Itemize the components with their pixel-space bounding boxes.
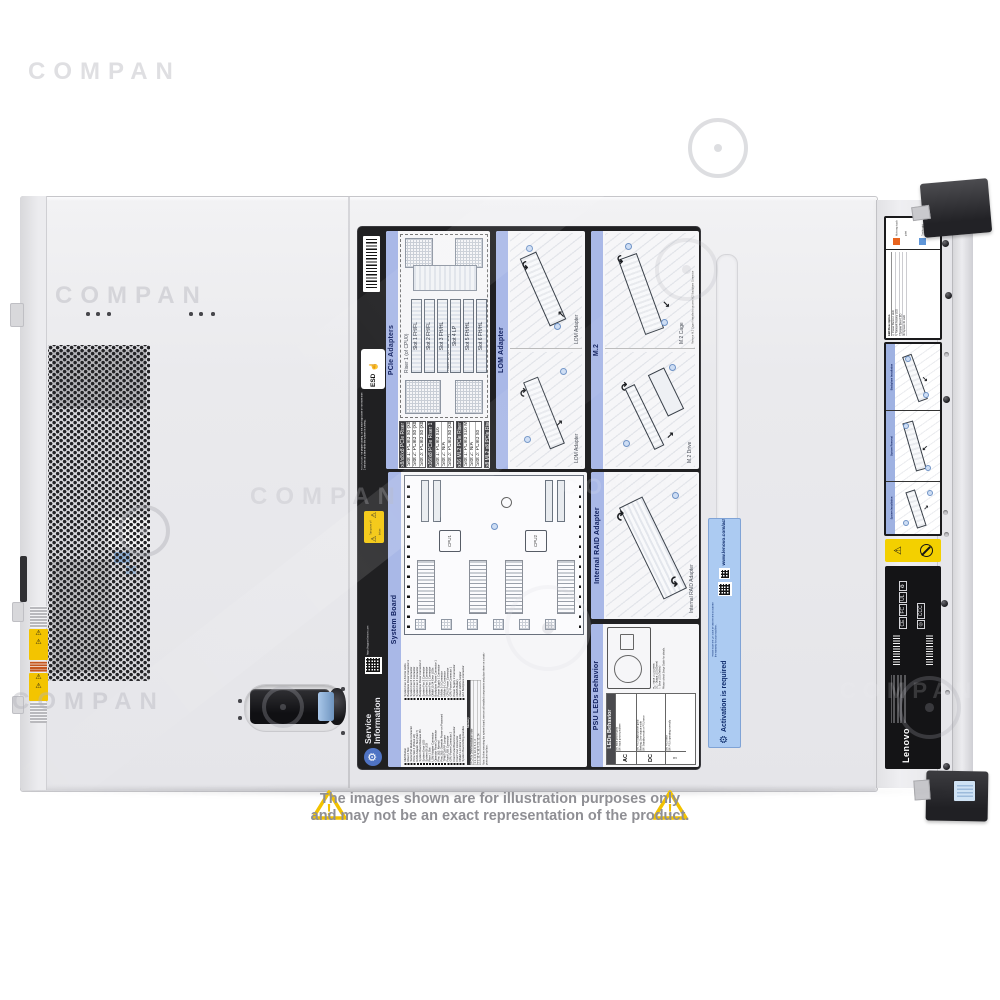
m2-caption: M.2 Cage bbox=[679, 322, 685, 344]
slot-stack: Slot 1 FH/FLSlot 2 FH/FLSlot 3 FH/HLSlot… bbox=[411, 299, 483, 373]
activation-title: Activation is required bbox=[721, 660, 728, 732]
pcie-riser-table: x16/x8 PCIe Riser 1 kitSlot 1: PCIe3 x16… bbox=[427, 421, 454, 468]
arrow-icon: ↷ bbox=[614, 510, 630, 521]
screw bbox=[943, 763, 950, 770]
psu-legend: AC : Input LED (Green)DC : Output LED (G… bbox=[653, 627, 695, 689]
callout-dot bbox=[554, 323, 561, 330]
warning-icon: ⚠ bbox=[35, 674, 41, 681]
screw bbox=[941, 600, 948, 607]
product-photo: ⚠⚠ ⚠⚠ ESD ☝ bbox=[0, 0, 1000, 1000]
fan-connector bbox=[493, 619, 504, 630]
callout-dot bbox=[623, 440, 630, 447]
watermark-logo bbox=[262, 686, 304, 728]
callout-dot bbox=[903, 423, 909, 429]
support-qr-code bbox=[365, 657, 382, 674]
callout-dot bbox=[625, 243, 632, 250]
arrow-icon: ↷ bbox=[619, 382, 632, 391]
support-url: https://support.lenovo.com bbox=[367, 626, 370, 655]
table-row: Slot 3: PCIe3 x8 (x8, x4, x1) bbox=[447, 422, 453, 467]
cmos-battery bbox=[501, 497, 512, 508]
table-row: Slot 3: PCIe3 x8 (x8, x4, x1) bbox=[419, 422, 425, 467]
dimm-bank bbox=[469, 560, 487, 614]
screw bbox=[945, 292, 952, 299]
lom-caption: LOM Adapter bbox=[574, 315, 580, 344]
reg-barcode bbox=[893, 635, 900, 665]
psu-fan-circle bbox=[614, 655, 642, 683]
psu-led-id: ! bbox=[666, 751, 686, 764]
lenovo-logo: Lenovo bbox=[901, 728, 911, 763]
orange-touchpoint bbox=[893, 238, 900, 245]
pcie-slot: Slot 1 FH/FL bbox=[411, 299, 422, 373]
cert-mark: ◎ bbox=[917, 620, 925, 629]
section-title: Backplane Installation bbox=[891, 364, 894, 390]
front-warning-label: ⚠ bbox=[885, 539, 941, 562]
support-qr-block: https://support.lenovo.com bbox=[360, 616, 386, 674]
callout-dot bbox=[661, 319, 668, 326]
table-header: x16/x8 PCIe Riser 1 kit bbox=[428, 422, 434, 467]
cert-mark: UL bbox=[899, 592, 907, 603]
arrow-icon: ↗ bbox=[556, 310, 567, 318]
warning-icon: ⚠ bbox=[35, 639, 41, 646]
orange-touchpoint-text: Hot-swap touch point bbox=[896, 220, 908, 236]
psu-behavior: Off: Input power problem bbox=[618, 694, 621, 751]
screw-hole bbox=[944, 352, 949, 357]
panel-pcie-adapters: PCIe Adapters x8/x8/x8 PCIe Riser 1 kitS… bbox=[386, 231, 490, 469]
section-backplane-installation: Backplane Installation ↙ bbox=[886, 344, 940, 410]
legend-item: M.2 Backplane Connector bbox=[462, 638, 465, 700]
led-table-row: ID System ID LED bbox=[903, 252, 907, 336]
pcie-slot: Slot 4 LP bbox=[450, 299, 461, 373]
cover-dot bbox=[238, 699, 242, 703]
cover-dot bbox=[86, 312, 90, 316]
section-title: System Installation bbox=[891, 497, 894, 520]
arrow-icon: ↙ bbox=[661, 300, 672, 308]
disclaimer: The images shown are for illustration pu… bbox=[0, 791, 1000, 825]
service-info-icon: ⚙ bbox=[364, 748, 382, 766]
arrow-icon: ↙ bbox=[921, 376, 929, 382]
psu-grid bbox=[455, 238, 483, 268]
arrow-icon: ↶ bbox=[668, 576, 684, 587]
watermark-logo bbox=[688, 118, 748, 178]
watermark-logo bbox=[505, 585, 591, 671]
activation-label: ⚙ Activation is required Please scan the… bbox=[708, 518, 741, 748]
section-title: System Removal bbox=[891, 436, 894, 456]
panel-title: M.2 bbox=[591, 231, 603, 469]
panel-title: System Board bbox=[388, 472, 401, 767]
panel-title: PSU LEDs Behavior bbox=[591, 624, 603, 767]
riser-block bbox=[413, 265, 477, 291]
pcie-riser-table: x8 ML2 x8 PCIe Riser 1 kitSlot 1: PCIe3 … bbox=[484, 421, 489, 468]
panel-title: PCIe Adapters bbox=[386, 231, 398, 469]
attention-text: ATTENTION: For proper cooling, do not le… bbox=[361, 392, 367, 470]
screw bbox=[942, 240, 949, 247]
screw-hole bbox=[943, 510, 948, 515]
callout-dot bbox=[925, 465, 931, 471]
panel-title: LOM Adapter bbox=[496, 231, 508, 469]
memory-table-row: 2 1, 13, 4, 16, 9, 21, 12, 24 bbox=[477, 680, 481, 765]
esd-hand-icon: ☝ bbox=[369, 362, 378, 372]
callout-dot bbox=[560, 368, 567, 375]
watermark-text: COMPAN bbox=[28, 58, 181, 86]
rack-latch-top[interactable] bbox=[920, 178, 992, 238]
cert-mark: CE bbox=[899, 617, 907, 629]
legend-item: System Board Lifting Handles bbox=[462, 703, 465, 765]
activation-note: Please scan the QR code or visit the lin… bbox=[712, 599, 718, 657]
m2-illustration-1: ↷ ↘ M.2 Drive bbox=[605, 352, 695, 467]
warning-icon: ⚠ bbox=[893, 546, 904, 555]
service-info-line2: Information bbox=[373, 697, 382, 744]
callout-dot bbox=[526, 245, 533, 252]
activation-qr-code bbox=[718, 582, 732, 596]
arrow-icon: ↶ bbox=[520, 261, 533, 270]
arrow-icon: ↘ bbox=[923, 505, 930, 510]
psu-led-table: LEDs Behavior AC On: Input power goodOff… bbox=[606, 693, 696, 765]
warning-icon: ⚠ bbox=[35, 630, 41, 637]
lom-illustration-1: ↷ ↘ LOM Adapter bbox=[510, 352, 582, 467]
activation-url: www.lenovo.com/activate bbox=[722, 518, 727, 565]
rear-slot bbox=[20, 556, 27, 602]
callout-dot bbox=[923, 392, 929, 398]
warning-icon: ⚠ bbox=[370, 536, 378, 542]
fan-grid bbox=[405, 380, 441, 414]
pcie-rear-diagram: Riser 1 (of CPU0) Riser 2 (of CPU1) Slot… bbox=[400, 234, 488, 418]
latch-hinge bbox=[911, 205, 931, 221]
esd-label: ESD ☝ bbox=[361, 349, 385, 389]
front-howto-label: System Installation ↘ System Removal bbox=[884, 342, 942, 536]
fan-connector bbox=[467, 619, 478, 630]
cover-dot bbox=[238, 716, 242, 720]
mini-warning-text: Turn power off before removing any non-h… bbox=[370, 519, 384, 535]
fan-grid bbox=[455, 380, 483, 414]
label-barcode bbox=[363, 236, 380, 292]
latch-blue-button[interactable] bbox=[318, 692, 334, 721]
watermark-text: COMPAN bbox=[250, 483, 403, 511]
cover-dot bbox=[199, 312, 203, 316]
attention-note: ATTENTION: For proper cooling, do not le… bbox=[361, 392, 383, 470]
activation-qr-code bbox=[719, 568, 730, 579]
psu-led-row-error: ! On: PSU errorOff: PSU operating normal… bbox=[665, 694, 686, 764]
cover-dot bbox=[96, 312, 100, 316]
riser-slot-bar bbox=[421, 480, 429, 522]
riser1-caption: Riser 1 (of CPU0) bbox=[404, 334, 410, 373]
psu-behavior: Off: PSU operating normally bbox=[668, 694, 671, 751]
rear-tab bbox=[12, 602, 24, 622]
callout-dot bbox=[905, 356, 911, 362]
rear-tab bbox=[10, 303, 24, 327]
section-system-installation: System Installation ↘ bbox=[886, 481, 940, 534]
blue-touchpoint bbox=[919, 238, 926, 245]
watermark-logo bbox=[655, 238, 718, 301]
psu-led-row-ac: AC On: Input power goodOff: Input power … bbox=[615, 694, 636, 764]
screw-hole bbox=[944, 532, 949, 537]
callout-dot bbox=[903, 520, 909, 526]
cpu1-label: CPU1 bbox=[447, 535, 452, 547]
warning-icon: ⚠ bbox=[370, 512, 378, 518]
section-system-removal: System Removal ↖ bbox=[886, 410, 940, 481]
watermark-logo bbox=[118, 505, 170, 557]
cover-dot bbox=[211, 312, 215, 316]
system-board-note: Note: Before removing the system board, … bbox=[482, 650, 488, 765]
cert-mark: ♻ bbox=[899, 581, 907, 590]
pcie-slot: Slot 2 FH/FL bbox=[424, 299, 435, 373]
table-row: Slot 2: PCIe3 x8 (x8, x4, x1) bbox=[412, 422, 418, 467]
psu-table-header: LEDs Behavior bbox=[607, 694, 615, 764]
table-header: x8 ML2 x8 PCIe Riser 1 kit bbox=[485, 422, 489, 467]
psu-led-id: DC bbox=[637, 751, 665, 764]
m2-cage-art bbox=[648, 367, 684, 416]
front-led-table: LED Description ◎ Power Button / LED↯ Ne… bbox=[888, 252, 938, 336]
barcode-bars bbox=[366, 239, 377, 289]
watermark-text: COMPAN bbox=[12, 688, 165, 716]
table-header: x8/x8/x8 PCIe Riser 1 kit bbox=[400, 422, 406, 467]
cert-marks: CEFCUL♻◎CCC bbox=[891, 571, 937, 629]
riser-slot-bar bbox=[545, 480, 553, 522]
table-row: Slot 1: PCIe3 x8 (x8, x4, x1) bbox=[406, 422, 412, 467]
fan-connector bbox=[415, 619, 426, 630]
arrow-icon: ↘ bbox=[554, 419, 565, 427]
pcie-riser-table: x16 ML2 PCIe Riser 1 kitSlot 1: PCIe3 x1… bbox=[456, 421, 483, 468]
pcie-slot: Slot 3 FH/HL bbox=[437, 299, 448, 373]
psu-grid bbox=[405, 238, 433, 268]
riser-slot-bar bbox=[433, 480, 441, 522]
mini-warning-label: ⚠ Turn power off before removing any non… bbox=[364, 511, 384, 543]
disclaimer-line1: The images shown are for illustration pu… bbox=[0, 791, 1000, 808]
lom-caption: LOM Adapter bbox=[574, 434, 580, 463]
rear-warning-label: ⚠⚠ bbox=[29, 629, 48, 660]
raid-caption: Internal RAID Adapter bbox=[689, 564, 695, 613]
release-pin-dot bbox=[491, 523, 498, 530]
watermark-text: COMPAN bbox=[562, 474, 700, 500]
led-table-divider bbox=[886, 249, 940, 250]
cover-dot bbox=[107, 312, 111, 316]
fan-connector bbox=[441, 619, 452, 630]
cpu-socket: CPU2 bbox=[525, 530, 547, 552]
cpu-socket: CPU1 bbox=[439, 530, 461, 552]
pcie-riser-table: x8/x8/x8 PCIe Riser 1 kitSlot 1: PCIe3 x… bbox=[399, 421, 426, 468]
psu-socket bbox=[620, 634, 634, 650]
service-info-title-block: ⚙ Service Information bbox=[358, 676, 388, 768]
dimm-bank bbox=[417, 560, 435, 614]
arrow-icon: ↶ bbox=[615, 255, 628, 264]
cover-dot bbox=[189, 312, 193, 316]
rear-barcode-label bbox=[30, 606, 47, 628]
callout-dot bbox=[669, 364, 676, 371]
rear-red-label bbox=[30, 661, 47, 672]
arrow-icon: ↷ bbox=[518, 388, 531, 397]
lom-illustration-2: ↶ ↗ LOM Adapter bbox=[510, 233, 582, 349]
psu-led-row-dc: DC On: PSU output power goodBlinking: Ze… bbox=[636, 694, 665, 764]
no-touch-icon bbox=[920, 544, 933, 557]
table-header: x16 ML2 PCIe Riser 1 kit bbox=[457, 422, 463, 467]
arrow-icon: ↖ bbox=[921, 445, 929, 451]
psu-behavior: Off: Standby mode or PSU error bbox=[642, 694, 645, 751]
screw bbox=[943, 396, 950, 403]
reg-barcode bbox=[926, 635, 933, 665]
cover-dot bbox=[341, 731, 345, 735]
gear-icon: ⚙ bbox=[719, 735, 730, 744]
pcie-slot: Slot 6 FH/HL bbox=[476, 299, 487, 373]
cert-mark: CCC bbox=[917, 603, 925, 619]
psu-legend-line: ! : Error LED (Yellow) bbox=[659, 627, 662, 689]
esd-text: ESD bbox=[370, 374, 377, 387]
panel-lom-adapter: LOM Adapter ↷ ↘ LOM Adapter ↶ ↗ LOM Adap… bbox=[496, 231, 585, 469]
psu-drawing bbox=[607, 627, 651, 689]
watermark-logo bbox=[898, 676, 961, 739]
cert-mark: FC bbox=[899, 604, 907, 616]
callout-dot bbox=[524, 436, 531, 443]
cpu2-label: CPU2 bbox=[533, 535, 538, 547]
table-row: Slot 3: PCIe3 x8 bbox=[475, 422, 481, 467]
table-row: Slot 1: PCIe3 x16 ML2 bbox=[463, 422, 469, 467]
psu-note: Please check Setup Guide for details. bbox=[663, 634, 666, 689]
arrow-icon: ↘ bbox=[665, 431, 676, 439]
m2-caption: M.2 Drive bbox=[687, 442, 693, 463]
pcie-tables: x8/x8/x8 PCIe Riser 1 kitSlot 1: PCIe3 x… bbox=[399, 421, 489, 468]
table-row: Slot 1: PCIe3 x16 bbox=[435, 422, 441, 467]
disclaimer-line2: and may not be an exact representation o… bbox=[0, 808, 1000, 825]
callout-strip bbox=[407, 482, 410, 628]
callout-dot bbox=[927, 490, 933, 496]
psu-led-id: AC bbox=[616, 751, 636, 764]
watermark-text: COMPAN bbox=[55, 282, 208, 310]
pcie-slot: Slot 5 FH/HL bbox=[463, 299, 474, 373]
panel-psu-leds: PSU LEDs Behavior LEDs Behavior AC On: I… bbox=[591, 624, 699, 767]
